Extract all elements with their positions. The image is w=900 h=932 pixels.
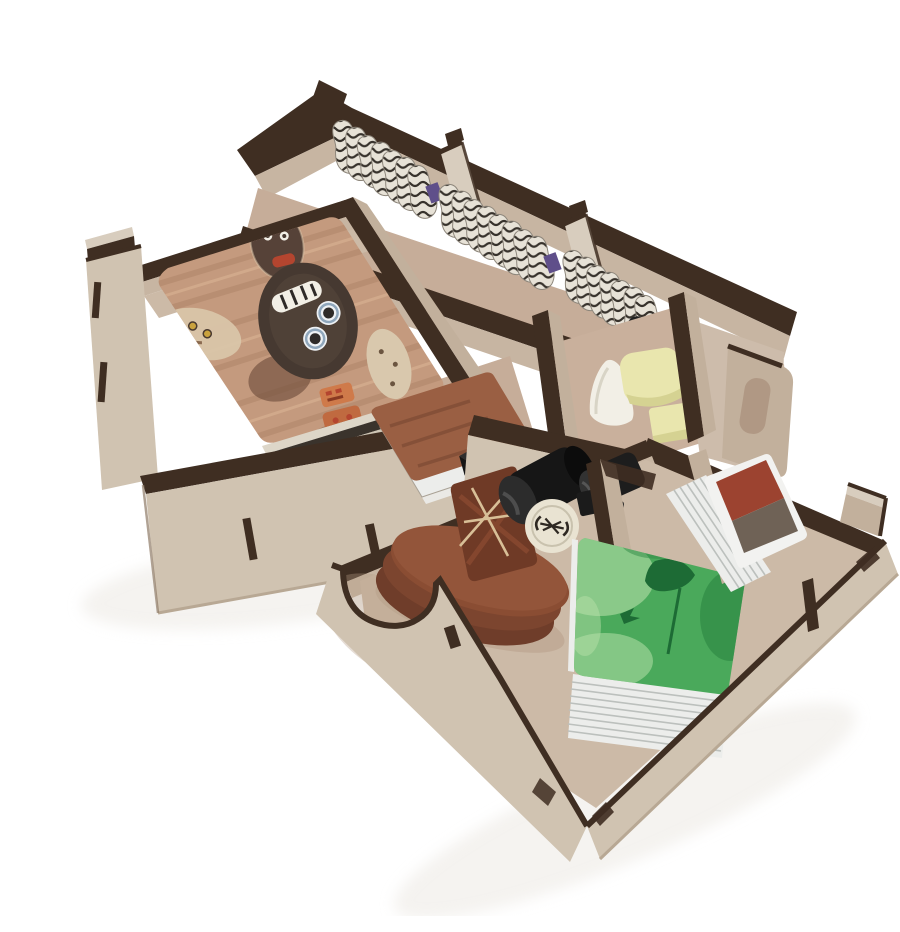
white-hourglass-token [525,499,579,553]
product-photo [40,16,900,916]
photo-canvas [40,16,900,916]
